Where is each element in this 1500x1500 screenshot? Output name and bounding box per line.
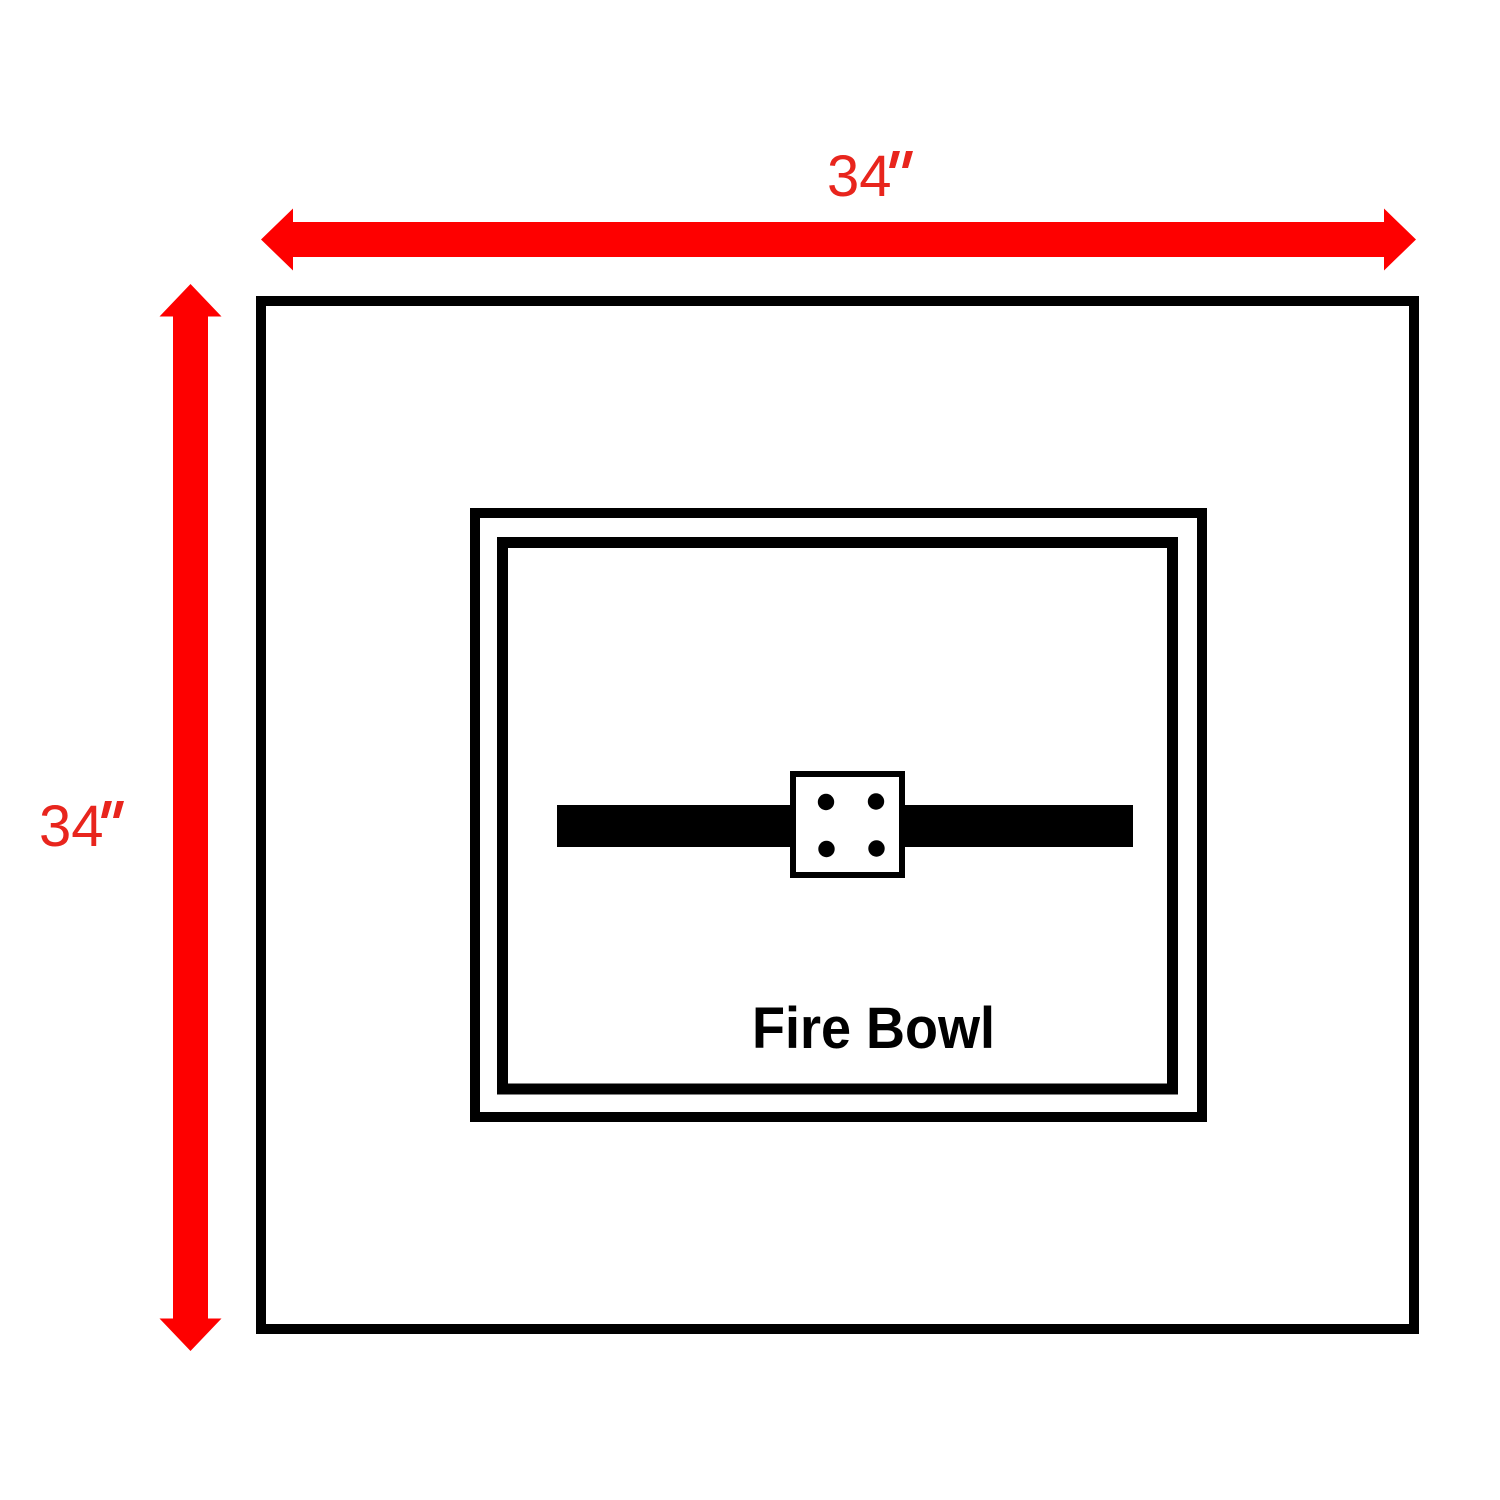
svg-text:Fire Bowl: Fire Bowl — [752, 996, 995, 1061]
svg-text:34: 34 — [39, 794, 104, 859]
svg-text:34: 34 — [827, 144, 892, 209]
